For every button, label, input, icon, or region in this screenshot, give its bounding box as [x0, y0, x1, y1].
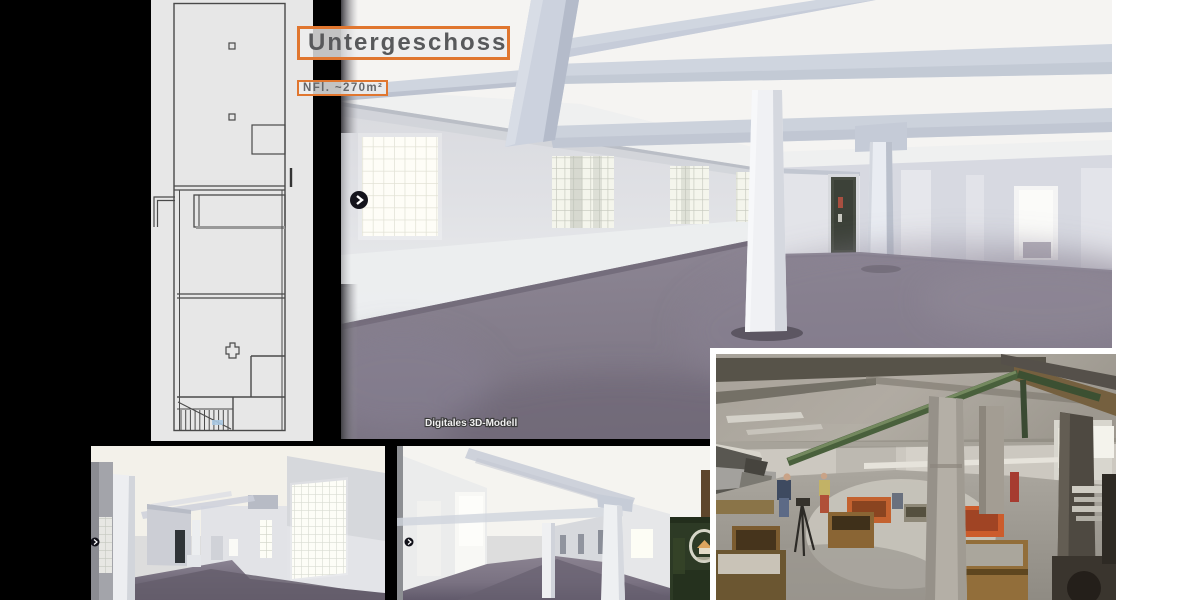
svg-text:Digitales 3D-Modell: Digitales 3D-Modell	[425, 418, 517, 429]
